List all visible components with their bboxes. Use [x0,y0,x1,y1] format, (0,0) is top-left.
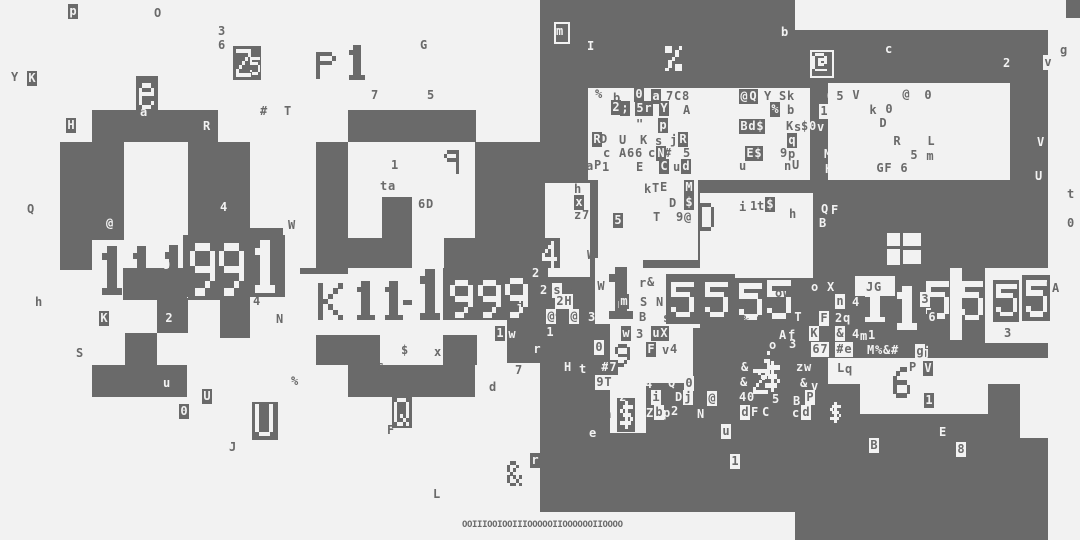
glitch-char: & [741,360,748,374]
glitch-char: G [420,38,427,52]
glitch-char: s [663,311,670,325]
glitch-char: V [1037,135,1044,149]
glitch-char: 1 [545,325,555,340]
glitch-char: k [644,182,651,196]
glitch-char: E [660,180,667,194]
block-rect [188,142,250,240]
glitch-char: 1 [391,158,398,172]
glitch-char: B [639,310,646,324]
glitch-char: 0 [884,102,894,117]
glitch-char: o [769,338,776,352]
glitch-char: T [652,181,659,195]
glitch-char: u [163,376,170,390]
glitch-char: & [740,375,747,389]
glitch-char: 1 [495,326,505,341]
glitch-char: K [809,326,819,341]
glitch-char: r [643,101,653,116]
glitch-char: Q [668,376,675,390]
glitch-char: a [860,90,867,104]
pixel-digit-1 [97,246,122,295]
glitch-char: 9 [555,310,562,324]
glitch-char: 1 [868,328,875,342]
glitch-char: h [35,295,42,309]
glitch-char: $ [401,343,408,357]
glitch-char: X [827,280,834,294]
glitch-char: t [579,362,586,376]
glitch-char: F [831,203,838,217]
glitch-char: w [783,286,790,300]
glitch-char: % [875,343,882,357]
glitch-char: o [811,280,818,294]
glitch-char: o [775,286,782,300]
glitch-char: 8 [917,149,924,163]
glitch-char: h [574,182,581,196]
glitch-char: C [674,89,681,103]
pixel-digit-% [665,46,682,71]
block-rect [60,142,124,240]
glitch-char: Z [646,406,653,420]
pixel-digit-q [444,146,459,174]
glitch-char: v [1043,55,1053,70]
pixel-digit-4 [542,241,557,269]
glitch-char: & [647,275,654,289]
glitch-char: B [869,438,879,453]
glitch-char: m [860,329,867,343]
glitch-char: x [434,345,441,359]
glitch-char: 4 [645,377,652,391]
pixel-digit-5 [705,282,728,317]
glitch-char: A [1052,281,1059,295]
glitch-char: t [380,179,387,193]
glitch-char: c [648,146,655,160]
glitch-char: d [801,405,811,420]
glitch-char: 2 [532,266,539,280]
glitch-char: @ [707,391,717,406]
pixel-digit-Z [236,49,251,77]
glitch-char: N [656,295,663,309]
glitch-char: V [923,361,933,376]
pixel-digit-$ [765,361,780,392]
glitch-char: i [739,200,746,214]
glitch-char: 2 [671,404,678,418]
glitch-char: c [885,42,892,56]
glitch-char: g [910,89,917,103]
block-rect [443,335,477,365]
glitch-char: d [740,405,750,420]
glitch-char: v [841,163,848,177]
pixel-digit-1 [128,246,151,292]
glitch-char: A [683,103,690,117]
glitch-char: h [924,103,931,117]
glitch-char: z [796,360,803,374]
glitch-char: # [854,135,861,149]
glitch-char: Q [27,202,34,216]
glitch-char: E [939,425,946,439]
glitch-char: 7 [371,88,378,102]
glitch-char: P [909,360,916,374]
glitch-char: 1 [602,160,609,174]
pixel-digit-5 [960,281,983,320]
glitch-char: u [673,160,680,174]
glitch-char: 3 [920,292,930,307]
glitch-char: $ [755,119,765,134]
block-rect [316,335,380,365]
glitch-char: j [683,390,693,405]
glitch-char: 0 [634,87,644,102]
glitch-char: $ [765,197,775,212]
pixel-digit-9 [190,243,215,296]
glitch-char: s [377,359,384,373]
glitch-char: F [751,405,758,419]
block-rect [1066,0,1080,18]
glitch-char: & [835,326,845,341]
glitch-char: # [260,104,267,118]
grid-icon [903,250,921,264]
pixel-digit-- [400,283,415,322]
glitch-char: U [202,389,212,404]
glitch-char: k [756,315,763,329]
glitch-char: O [154,6,161,20]
block-rect [125,333,157,367]
glitch-char: M [824,147,831,161]
glitch-char: u [739,159,746,173]
glitch-char: a [586,159,593,173]
glitch-char: 1 [924,393,934,408]
glitch-char: L [926,134,936,149]
glitch-char: % [770,102,780,117]
glitch-char: E [636,160,643,174]
glitch-char: m [925,149,935,164]
glitch-char: N [697,407,704,421]
glitch-char: O [827,89,834,103]
glitch-char: K [640,133,647,147]
glitch-char: 6 [627,146,634,160]
glitch-char: N [276,312,283,326]
glitch-char: 0 [179,404,189,419]
glitch-char: n [590,182,597,196]
glitch-char: % [291,374,298,388]
glitch-char: m [556,24,563,38]
glitch-char: a [140,105,147,119]
glitch-char: F [819,311,829,326]
glitch-char: H [825,162,832,176]
block-rect [475,142,542,238]
glitch-char: 7 [515,363,522,377]
glitch-char: @ [684,210,691,224]
glitch-char: 0 [809,119,816,133]
glitch-char: p [663,406,670,420]
grid-icon [887,233,900,246]
glitch-char: q [562,326,569,340]
pixel-digit-Q [394,398,409,426]
glitch-char: k [787,89,794,103]
glitch-char: g [1060,43,1067,57]
glitch-char: " [636,117,643,131]
block-rect [60,240,92,270]
block-rect [316,142,348,238]
glitch-char: i [651,390,661,405]
pixel-digit-5 [671,282,694,317]
glitch-char: @ [106,216,113,230]
glitch-char: 9 [163,258,170,272]
glitch-char: 4 [253,294,260,308]
glitch-char: e [589,426,596,440]
glitch-char: A [779,328,786,342]
glitch-char: Y [659,101,669,116]
glitch-char: W [833,162,840,176]
pixel-digit-5 [996,284,1017,316]
glitch-char: z [923,163,930,177]
glitch-char: D [600,132,607,146]
pixel-digit-p [316,47,336,79]
glitch-char: 2 [835,311,842,325]
pixel-digit-6 [893,367,910,398]
glitch-char: @ [569,309,579,324]
glitch-char: F [883,161,893,176]
glitch-char: p [68,4,78,19]
glitch-char: $ [620,376,627,390]
glitch-char: 8 [682,89,689,103]
glitch-char: o [363,106,370,120]
glitch-char: 3 [789,337,796,351]
block-rect [382,197,412,238]
glitch-char: y [596,295,603,309]
glitch-char: R [678,132,688,147]
glitch-char: j [832,149,839,163]
glitch-char: 4 [852,327,859,341]
glitch-char: H [564,360,571,374]
glitch-char: c [792,406,799,420]
glitch-char: 7 [582,208,589,222]
block-rect [316,238,412,268]
glitch-char: n [835,294,845,309]
glitch-char: v [662,343,669,357]
glitch-char: 9 [803,312,810,326]
glitch-char: 7 [819,342,829,357]
glitch-char: D [426,197,433,211]
glitch-char: 0 [594,340,604,355]
glitch-char: t [1067,187,1074,201]
glitch-char: 3 [1004,326,1011,340]
glitch-char: 4 [220,200,227,214]
pixel-digit-1 [345,45,365,80]
glitch-char: 1 [819,104,829,119]
glitch-char: q [787,133,797,148]
glitch-char: u [721,424,731,439]
glitch-char: Y [11,70,18,84]
glitch-char: P [594,158,601,172]
glitch-char: D [669,196,676,210]
glitch-char: $ [753,146,763,161]
grid-icon [887,249,900,265]
glitch-char: K [99,311,109,326]
glitch-char: 3 [218,24,225,38]
glitch-char: M [684,180,694,195]
glitch-char: z [742,296,749,310]
glitch-char: A [619,146,626,160]
glitch-char: o [570,326,577,340]
glitch-char: j [923,345,930,359]
block-rect [92,365,187,397]
pixel-digit-& [507,461,522,486]
block-rect [220,300,250,338]
glitch-char: 6 [927,310,937,325]
glitch-char: a [604,407,611,421]
glitch-char: I [578,326,585,340]
glitch-char: W [596,279,606,294]
glitch-char: S [640,295,647,309]
glitch-char: 4 [852,295,859,309]
pixel-digit-$ [620,401,633,429]
glitch-char: h [789,207,796,221]
glitch-char: S [76,346,83,360]
pixel-digit-1 [250,240,275,293]
glitch-char: W [587,248,594,262]
glitch-char: 6 [849,162,856,176]
pixel-digit-Y [951,113,968,135]
glitch-char: C [659,159,669,174]
glitch-char: e [884,135,891,149]
glitch-char: 0 [923,88,933,103]
glitch-char: 4 [739,390,746,404]
glitch-char: k [868,103,878,118]
glitch-char: L [433,487,440,501]
glitch-char: T [653,210,660,224]
glitch-char: $ [684,195,694,210]
glitch-char: 9 [676,210,683,224]
glitch-char: c [603,146,610,160]
pixel-digit-9 [219,243,244,296]
glitch-char: W [288,218,295,232]
block-rect [92,110,218,142]
glitch-char: 5 [613,213,623,228]
glitch-char: t [862,135,869,149]
glitch-char: # [664,146,671,160]
glitch-char: z [574,208,581,222]
pixel-digit-D [699,203,714,231]
glitch-char: 0 [684,376,694,391]
glitch-char: B [819,216,826,230]
glitch-char: m [619,294,629,309]
glitch-char: d [681,159,691,174]
glitch-char: U [1035,169,1042,183]
glitch-char: M [867,343,874,357]
glitch-char: U [635,389,642,403]
glitch-char: 2 [916,103,923,117]
glitch-char: 7 [608,360,618,375]
glitch-char: q [845,362,852,376]
glitch-char: % [595,87,602,101]
glitch-char: 1 [901,148,908,162]
glitch-char: 6 [418,197,425,211]
glitch-char: X [659,326,669,341]
pixel-digit-1 [892,286,917,329]
glitch-char: ' [1044,280,1051,294]
pixel-digit-1 [603,267,633,319]
glitch-char: p [658,118,668,133]
glitch-char: r [532,342,542,357]
glitch-char: b [781,25,788,39]
glitch-char: S [779,89,786,103]
glitch-char: R [203,119,210,133]
glitch-char: w [804,360,811,374]
glitch-char: Q [821,202,828,216]
glitch-char: d [489,380,496,394]
glitch-art-canvas: pO36YKHR#TaQ@4W9hK24NS%uU0JG75o1ta6D$xs7… [0,0,1080,540]
glitch-char: v [817,120,824,134]
glitch-char: q [843,311,850,325]
glitch-char: r [639,276,646,290]
glitch-char: $ [801,119,808,133]
glitch-char: r [530,453,540,468]
glitch-char: x [870,117,877,131]
grid-icon [903,233,921,246]
block-rect [348,365,475,397]
glitch-char: z [619,390,626,404]
glitch-char: 5 [835,89,845,104]
pixel-digit-9 [450,280,473,318]
glitch-char: I [587,39,594,53]
glitch-char: 3 [588,310,595,324]
block-rect [444,238,540,268]
pixel-digit-K [318,283,343,320]
glitch-char: V [910,135,917,149]
glitch-char: 3 [636,327,643,341]
glitch-char: w [621,326,631,341]
glitch-char: 2 [1003,56,1010,70]
glitch-char: j [670,133,677,147]
glitch-char: v [811,379,818,393]
glitch-char: F [387,423,394,437]
glitch-char: 8 [956,442,966,457]
glitch-char: 5 [683,146,690,160]
pixel-digit-9 [478,280,501,318]
glitch-char: 0 [1067,216,1074,230]
pixel-digit-1 [415,269,440,320]
glitch-char: T [793,310,803,325]
glitch-char: T [603,375,613,390]
glitch-char: H [563,294,573,309]
glitch-char: 2 [164,311,174,326]
barcode-text: OOIIIOOIOOIIIOOOOOIIOOOOOOIIOOOO [462,520,623,530]
block-rect [1020,358,1053,438]
glitch-char: 6 [635,146,642,160]
glitch-char: q [811,407,818,421]
glitch-char: R [892,134,902,149]
pixel-digit-U [255,404,273,436]
pixel-digit-5 [250,57,260,75]
glitch-char: 5 [772,392,779,406]
glitch-char: 9 [780,146,787,160]
glitch-char: J [229,440,236,454]
glitch-char: ; [620,101,630,116]
glitch-char: b [787,103,794,117]
glitch-char: w [507,327,517,342]
glitch-char: j [516,300,523,314]
glitch-char: e [843,342,853,357]
glitch-char: F [646,342,656,357]
glitch-char: & [883,343,890,357]
glitch-char: 1 [730,454,740,469]
glitch-char: D [675,390,682,404]
glitch-char: n [784,159,791,173]
glitch-char: L [837,361,844,375]
pixel-digit-1 [352,281,375,320]
glitch-char: K [27,71,37,86]
glitch-char: % [742,313,749,327]
pixel-digit-$ [830,402,841,422]
glitch-char: & [800,376,807,390]
